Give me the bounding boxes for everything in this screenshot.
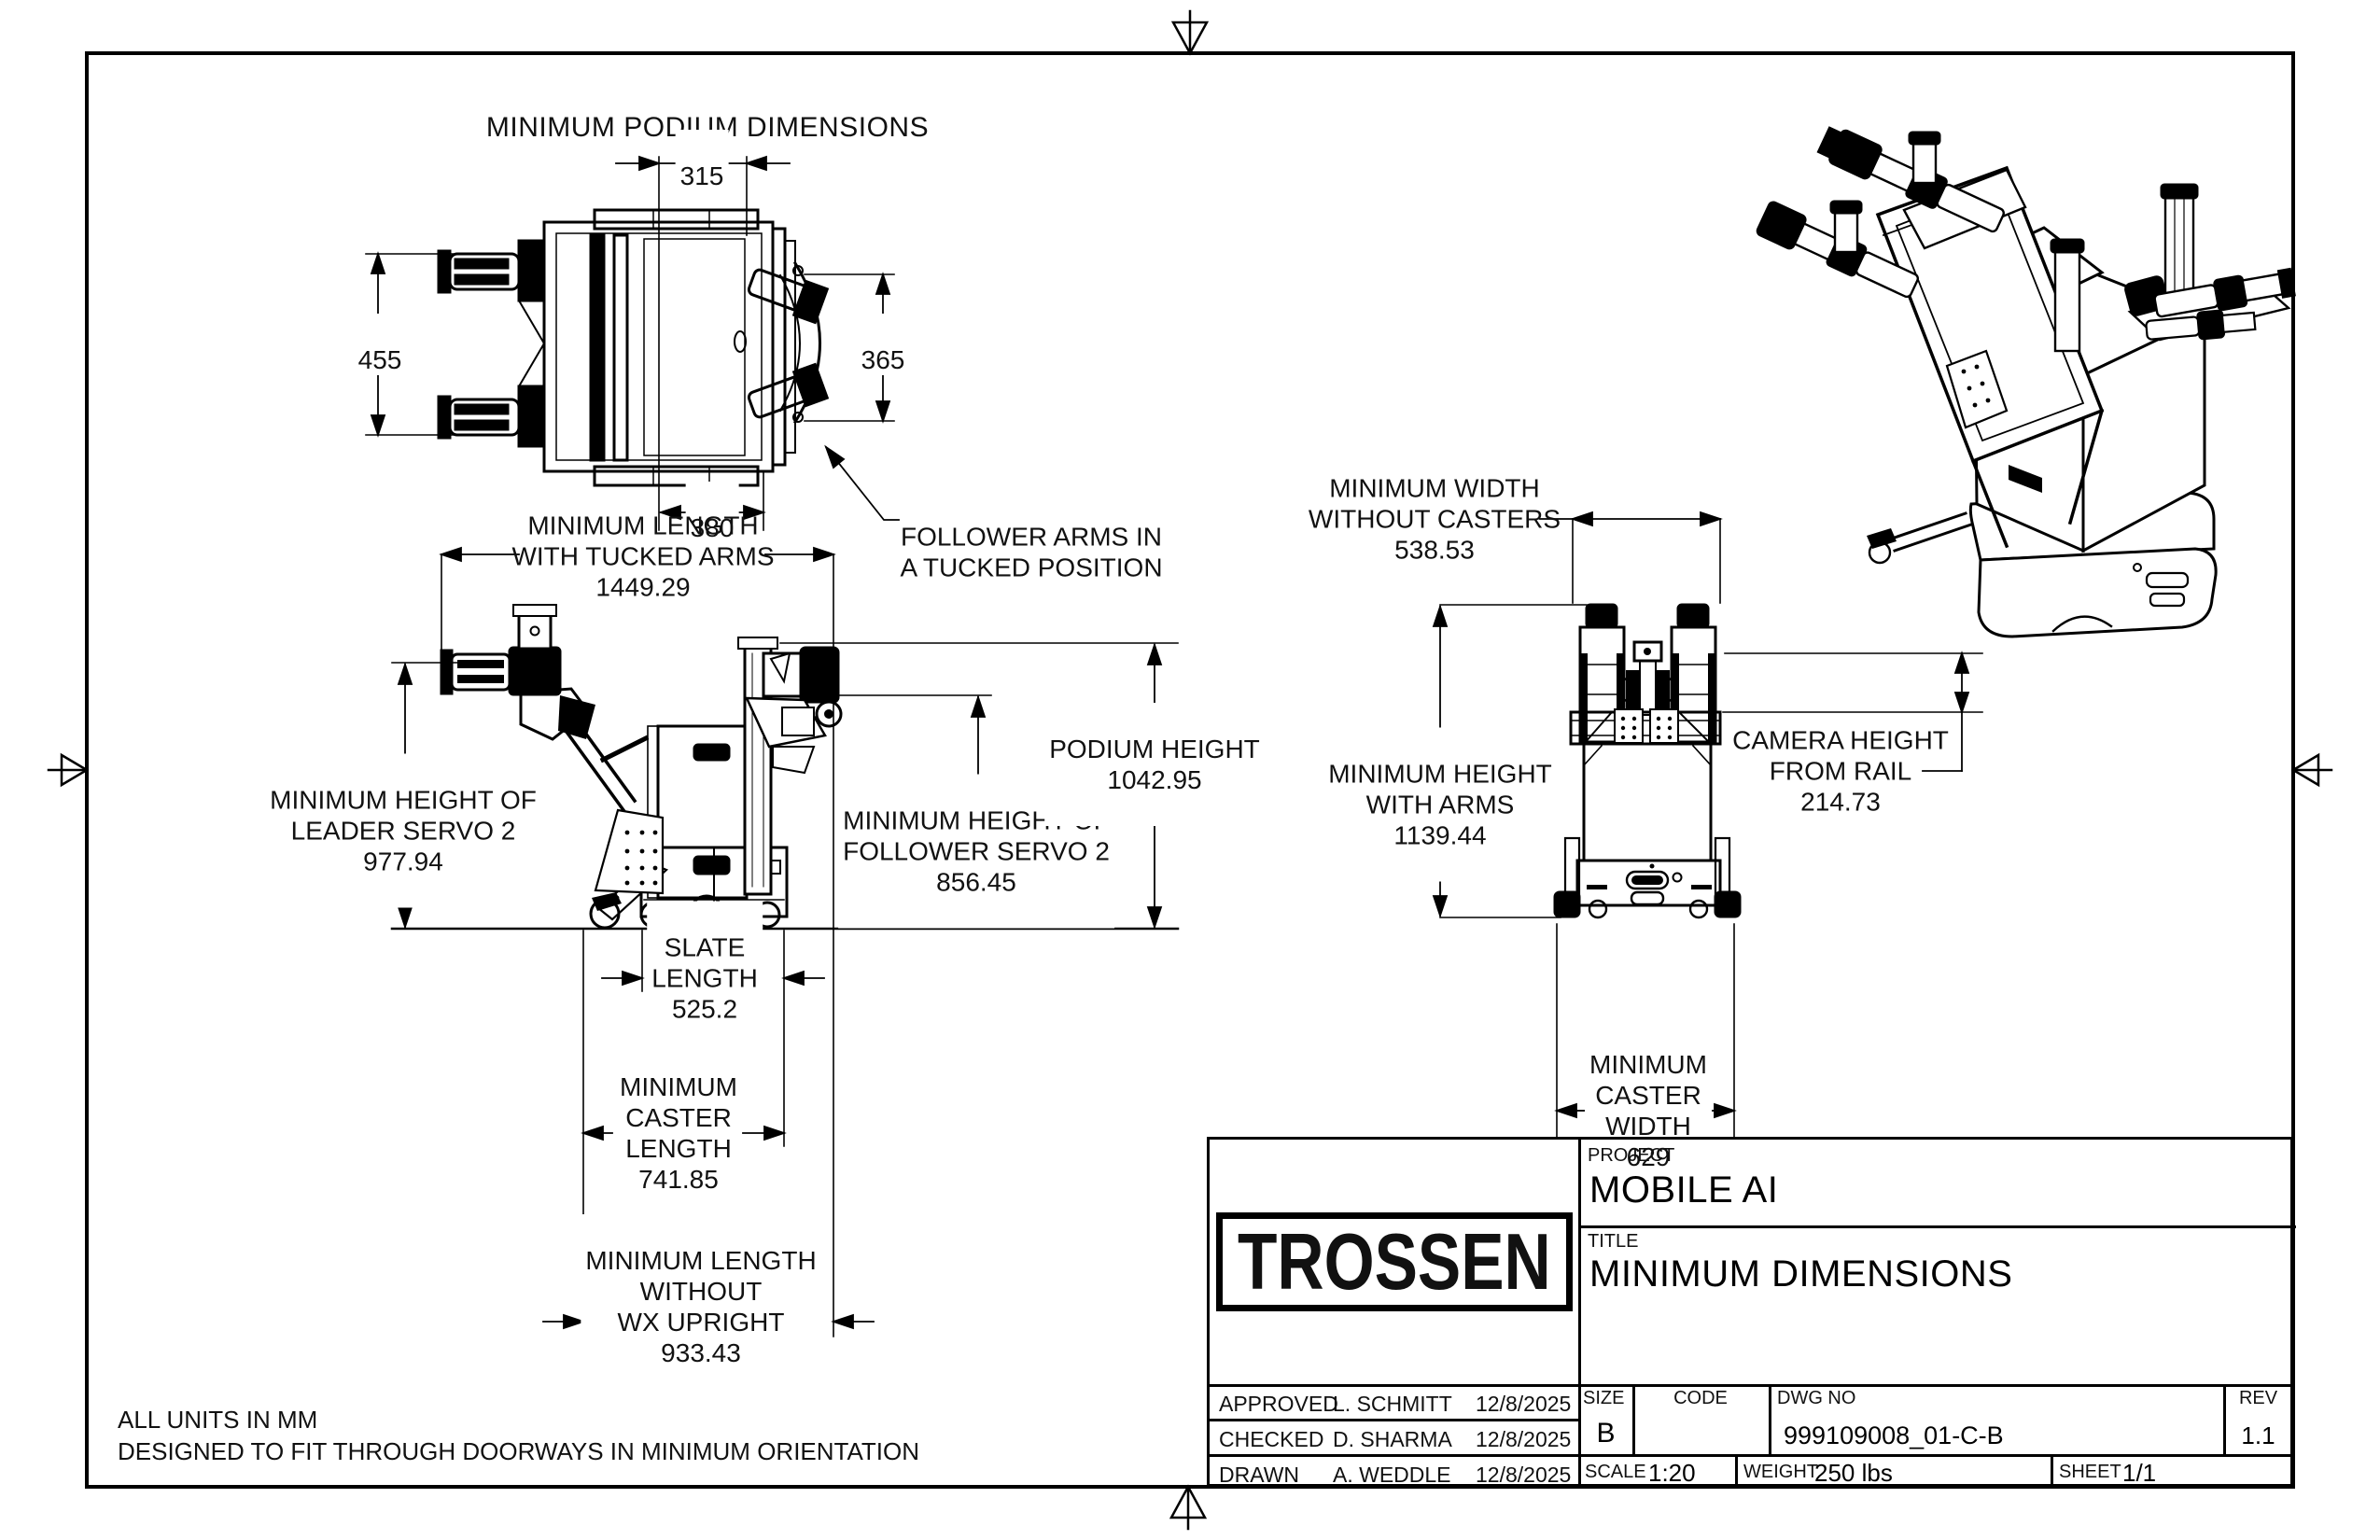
rev-value: 1.1 (2223, 1421, 2293, 1450)
dim-value: 1042.95 (1049, 764, 1260, 795)
note-units: ALL UNITS IN MM (118, 1406, 317, 1435)
front-view-drawing (1555, 605, 1740, 917)
dwg-no-label: DWG NO (1777, 1388, 1855, 1409)
dim-min-height-leader-servo: MINIMUM HEIGHT OF LEADER SERVO 2 977.94 (265, 754, 541, 908)
approved-role: APPROVED (1219, 1392, 1338, 1417)
dim-label: MINIMUM HEIGHT OF LEADER SERVO 2 (270, 786, 537, 846)
dim-label: SLATE LENGTH (651, 933, 758, 993)
dim-label: MINIMUM WIDTH WITHOUT CASTERS (1309, 474, 1561, 534)
dim-podium-height: PODIUM HEIGHT 1042.95 (1044, 703, 1265, 826)
dim-min-height-with-arms: MINIMUM HEIGHT WITH ARMS 1139.44 (1323, 728, 1557, 882)
centering-mark-right-icon (2293, 755, 2331, 785)
dim-value: 214.73 (1732, 787, 1949, 818)
drawn-date: 12/8/2025 (1476, 1463, 1569, 1488)
drawing-title: MINIMUM DIMENSIONS (1589, 1253, 2012, 1295)
scale-label: SCALE (1585, 1462, 1646, 1483)
rev-label: REV (2223, 1388, 2293, 1409)
dim-value: 856.45 (843, 867, 1110, 898)
dim-value: 525.2 (651, 994, 758, 1025)
top-view-drawing (439, 210, 827, 485)
dim-value: 933.43 (585, 1337, 816, 1368)
dim-min-length-without-upright: MINIMUM LENGTH WITHOUT WX UPRIGHT 933.43 (581, 1214, 820, 1399)
dim-value: 1139.44 (1328, 820, 1552, 851)
drawn-role: DRAWN (1219, 1463, 1299, 1488)
note-text: DESIGNED TO FIT THROUGH DOORWAYS IN MINI… (118, 1437, 919, 1465)
dim-label: CAMERA HEIGHT FROM RAIL (1732, 726, 1949, 786)
centering-mark-bottom-icon (1171, 1487, 1205, 1529)
dim-label: PODIUM HEIGHT (1049, 735, 1260, 763)
centering-mark-top-icon (1173, 11, 1207, 53)
dwg-no-value: 999109008_01-C-B (1784, 1421, 2004, 1450)
approved-date: 12/8/2025 (1476, 1392, 1569, 1417)
dim-value: 977.94 (270, 847, 537, 877)
dim-min-length-tucked-arms: MINIMUM LENGTH WITH TUCKED ARMS 1449.29 (511, 480, 774, 634)
checked-date: 12/8/2025 (1476, 1427, 1569, 1452)
note-text: ALL UNITS IN MM (118, 1406, 317, 1434)
drawing-sheet: MINIMUM PODIUM DIMENSIONS 315 455 365 38… (0, 0, 2380, 1540)
sheet-value: 1/1 (2122, 1459, 2156, 1488)
title-label: TITLE (1588, 1231, 1638, 1253)
dim-label: MINIMUM CASTER WIDTH (1589, 1050, 1707, 1141)
checked-name: D. SHARMA (1333, 1427, 1452, 1452)
sheet-label: SHEET (2059, 1462, 2121, 1483)
dim-min-width-without-casters: MINIMUM WIDTH WITHOUT CASTERS 538.53 (1309, 442, 1561, 596)
project-label: PROJECT (1588, 1145, 1674, 1167)
dim-value: 365 (861, 345, 905, 374)
note-doorways: DESIGNED TO FIT THROUGH DOORWAYS IN MINI… (118, 1437, 919, 1466)
dim-podium-width-top: 315 (676, 130, 729, 191)
weight-value: 250 lbs (1814, 1459, 1893, 1488)
weight-label: WEIGHT (1743, 1462, 1818, 1483)
dim-label: MINIMUM LENGTH WITHOUT WX UPRIGHT (585, 1246, 816, 1337)
dim-podium-height-left: 455 (354, 314, 407, 375)
drawn-name: A. WEDDLE (1333, 1463, 1451, 1488)
logo-text: TROSSEN (1238, 1216, 1551, 1308)
dim-podium-height-right: 365 (857, 314, 910, 375)
dim-slate-length: SLATE LENGTH 525.2 (647, 902, 763, 1056)
note-text: FOLLOWER ARMS IN A TUCKED POSITION (900, 523, 1162, 582)
dim-label: MINIMUM LENGTH WITH TUCKED ARMS (511, 511, 774, 571)
dim-camera-height-from-rail: CAMERA HEIGHT FROM RAIL 214.73 (1732, 694, 1949, 848)
size-value: B (1579, 1418, 1632, 1449)
size-label: SIZE (1583, 1388, 1624, 1409)
dim-value: 538.53 (1309, 535, 1561, 566)
approved-name: L. SCHMITT (1333, 1392, 1452, 1417)
dim-label: MINIMUM HEIGHT WITH ARMS (1328, 760, 1552, 819)
dim-value: 315 (680, 161, 724, 190)
isometric-view-drawing (1757, 124, 2295, 637)
project-name: MOBILE AI (1589, 1169, 1778, 1211)
code-label: CODE (1632, 1388, 1769, 1409)
dim-label: MINIMUM CASTER LENGTH (620, 1072, 737, 1163)
dim-min-caster-length: MINIMUM CASTER LENGTH 741.85 (615, 1041, 742, 1225)
checked-role: CHECKED (1219, 1427, 1323, 1452)
dim-value: 741.85 (620, 1164, 737, 1195)
dim-value: 455 (358, 345, 402, 374)
title-block: TROSSEN PROJECT MOBILE AI TITLE MINIMUM … (1207, 1137, 2293, 1487)
trossen-logo: TROSSEN (1216, 1212, 1573, 1311)
scale-value: 1:20 (1648, 1459, 1696, 1488)
dim-value: 1449.29 (511, 572, 774, 603)
note-follower-arms: FOLLOWER ARMS IN A TUCKED POSITION (900, 491, 1162, 583)
centering-mark-left-icon (49, 755, 87, 785)
